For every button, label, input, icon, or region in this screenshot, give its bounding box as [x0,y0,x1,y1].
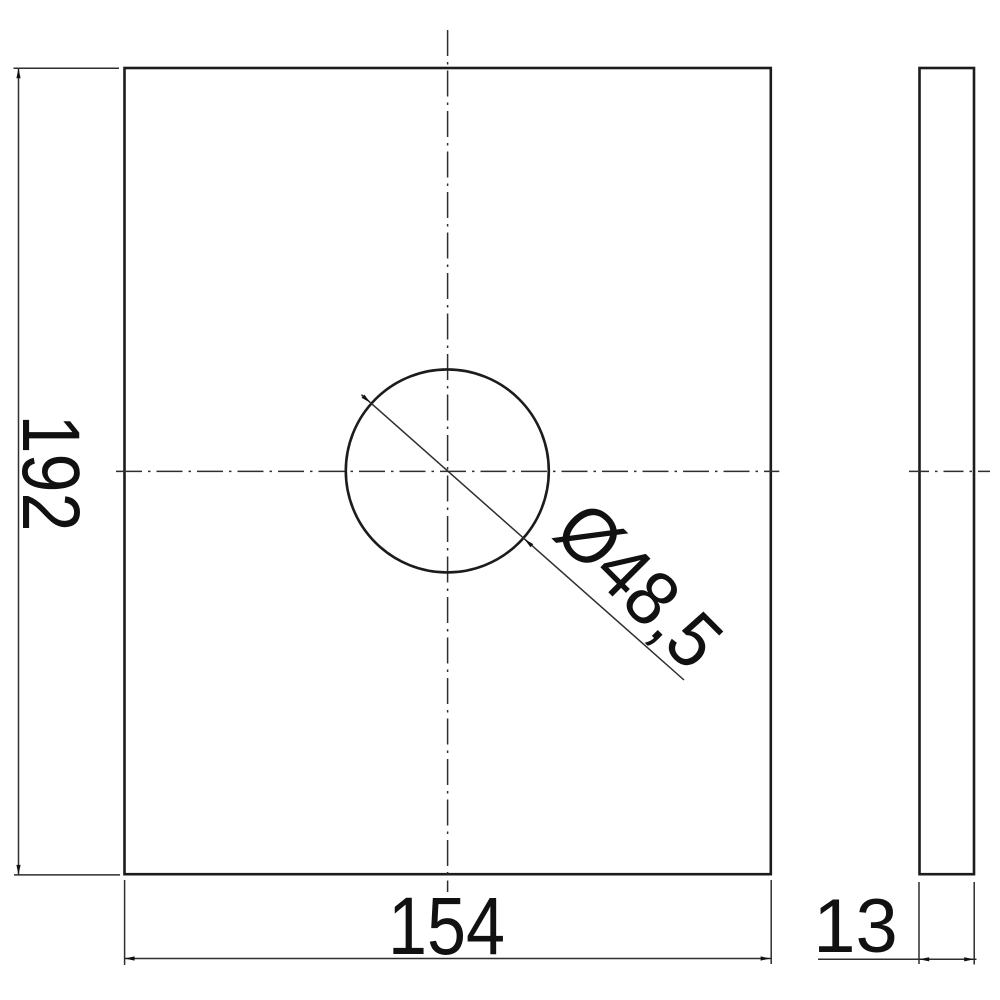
svg-text:13: 13 [813,884,898,969]
svg-text:192: 192 [5,415,96,532]
svg-text:154: 154 [388,881,505,972]
